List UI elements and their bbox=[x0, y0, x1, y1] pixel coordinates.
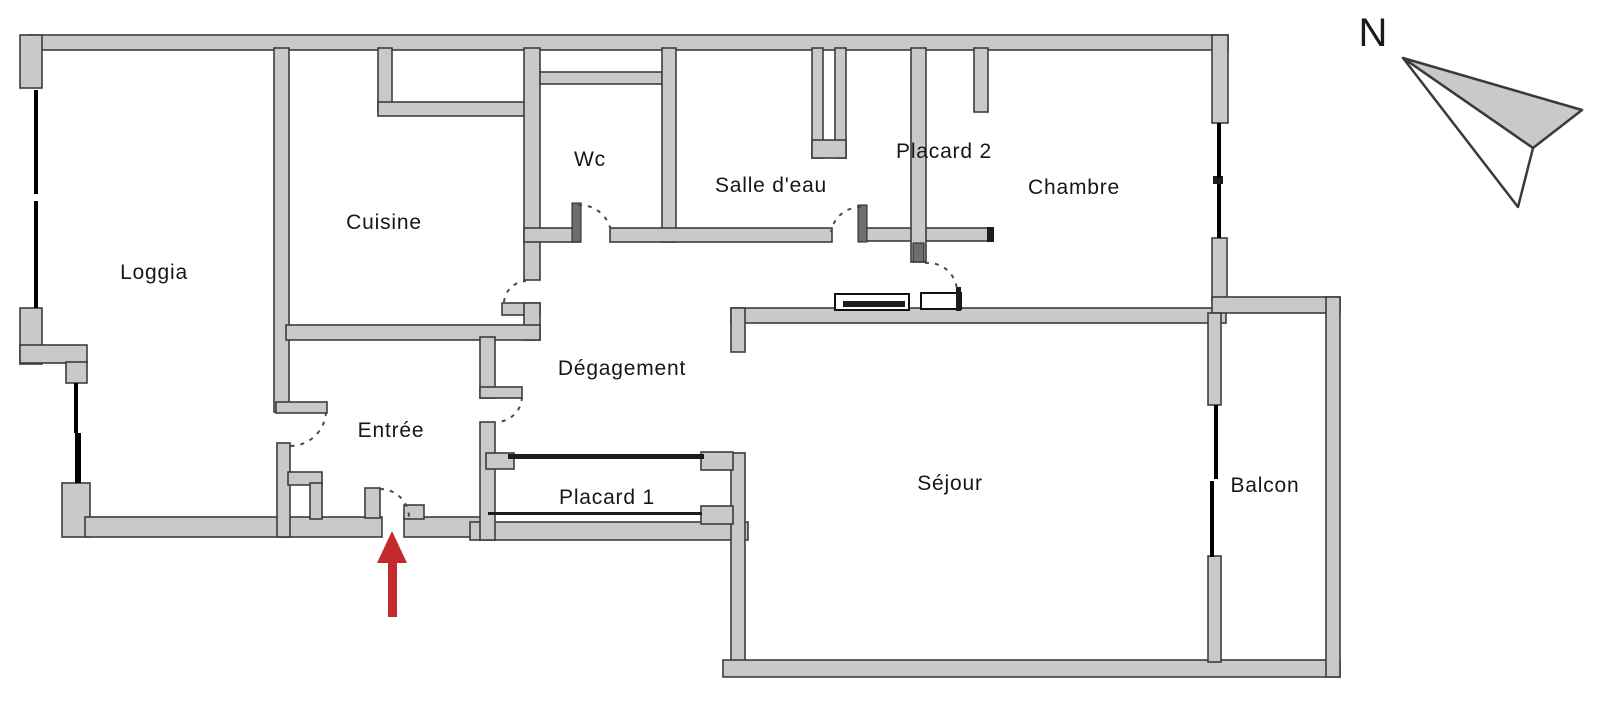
door-arc-entree-degagement bbox=[496, 397, 522, 422]
wall-sejour-top-return bbox=[731, 308, 745, 352]
placard1-bottom-line bbox=[488, 512, 702, 515]
door-leaf-salledeau bbox=[858, 205, 867, 242]
wall-cuisine-wc bbox=[524, 48, 540, 280]
room-label-balcon: Balcon bbox=[1230, 474, 1299, 497]
placard1-front-line bbox=[508, 454, 704, 459]
wall-cuisine-niche-bottom bbox=[378, 102, 538, 116]
door-stub-loggia-entree bbox=[276, 402, 327, 413]
wall-loggia-west-jog-3 bbox=[66, 362, 87, 383]
wall-corner-top-left bbox=[20, 35, 42, 88]
room-label-sejour: Séjour bbox=[917, 472, 983, 495]
door-arc-loggia-entree bbox=[290, 412, 326, 446]
wall-sejour-west bbox=[731, 453, 745, 667]
wall-sejour-balcon-lower bbox=[1208, 556, 1221, 662]
room-label-loggia: Loggia bbox=[120, 261, 188, 284]
door-leaf-wc bbox=[572, 203, 581, 242]
wall-balcon-east bbox=[1326, 297, 1340, 677]
wall-sejour-bottom bbox=[723, 660, 1340, 677]
sliding-door-pocket bbox=[921, 293, 961, 309]
wall-placard1-cap-right-bottom bbox=[701, 506, 733, 524]
room-label-placard1: Placard 1 bbox=[559, 486, 655, 509]
wall-chambre-east-upper bbox=[1212, 35, 1228, 123]
wall-shaft-bottom bbox=[812, 140, 846, 158]
wall-balcon-top bbox=[1212, 297, 1340, 313]
wall-loggia-west-jog-2 bbox=[20, 345, 87, 363]
sliding-door-end-cap bbox=[956, 287, 961, 311]
room-label-degagement: Dégagement bbox=[558, 357, 686, 380]
room-label-wc: Wc bbox=[574, 148, 606, 171]
wall-corridor-top-1 bbox=[610, 228, 832, 242]
floor-plan-drawing: Loggia Cuisine Wc Salle d'eau Placard 2 … bbox=[0, 0, 1600, 709]
wall-entree-closet-right bbox=[310, 483, 322, 519]
room-label-chambre: Chambre bbox=[1028, 176, 1120, 199]
room-label-cuisine: Cuisine bbox=[346, 211, 422, 234]
wall-wc-salledeau bbox=[662, 48, 676, 242]
room-label-salledeau: Salle d'eau bbox=[715, 174, 827, 197]
wall-bottom-loggia bbox=[85, 517, 291, 537]
wall-placard2-chambre-stub bbox=[974, 48, 988, 112]
door-arc-salledeau bbox=[831, 207, 861, 232]
wall-sejour-top bbox=[731, 308, 1226, 323]
entrance-arrow-shaft bbox=[388, 559, 397, 617]
floor-plan-page: Loggia Cuisine Wc Salle d'eau Placard 2 … bbox=[0, 0, 1600, 709]
wall-chambre-east-lower bbox=[1212, 238, 1227, 300]
door-stub-entree-degagement bbox=[480, 387, 522, 398]
wall-end-cap bbox=[987, 227, 994, 242]
door-leaf-entree-front bbox=[365, 488, 380, 518]
door-jamb-entree-front bbox=[404, 505, 424, 519]
sliding-door-track bbox=[843, 301, 905, 307]
wall-loggia-entree-lower bbox=[277, 443, 290, 537]
wall-loggia-cuisine bbox=[274, 48, 289, 412]
wall-details bbox=[488, 176, 1223, 515]
wall-top bbox=[28, 35, 1228, 50]
room-label-entree: Entrée bbox=[358, 419, 425, 442]
wall-sejour-balcon-upper bbox=[1208, 313, 1221, 405]
compass-north-label: N bbox=[1359, 11, 1388, 55]
wall-entree-degagement-lower bbox=[480, 422, 495, 540]
wall-bottom-entree-left bbox=[288, 517, 382, 537]
entrance-arrow bbox=[377, 531, 407, 617]
door-arc-wc bbox=[578, 205, 611, 231]
door-arc-cuisine bbox=[504, 281, 526, 302]
door-arc-chambre bbox=[925, 263, 957, 292]
wall-corridor-top-2 bbox=[865, 228, 993, 241]
wall-placard1-cap-right-top bbox=[701, 452, 733, 470]
walls bbox=[20, 35, 1340, 677]
sliding-door bbox=[835, 287, 961, 311]
wall-cuisine-bottom bbox=[286, 325, 540, 340]
room-label-placard2: Placard 2 bbox=[896, 140, 992, 163]
wall-wc-duct bbox=[540, 72, 662, 84]
compass: N bbox=[1359, 11, 1582, 207]
door-leaf-chambre bbox=[913, 243, 924, 262]
